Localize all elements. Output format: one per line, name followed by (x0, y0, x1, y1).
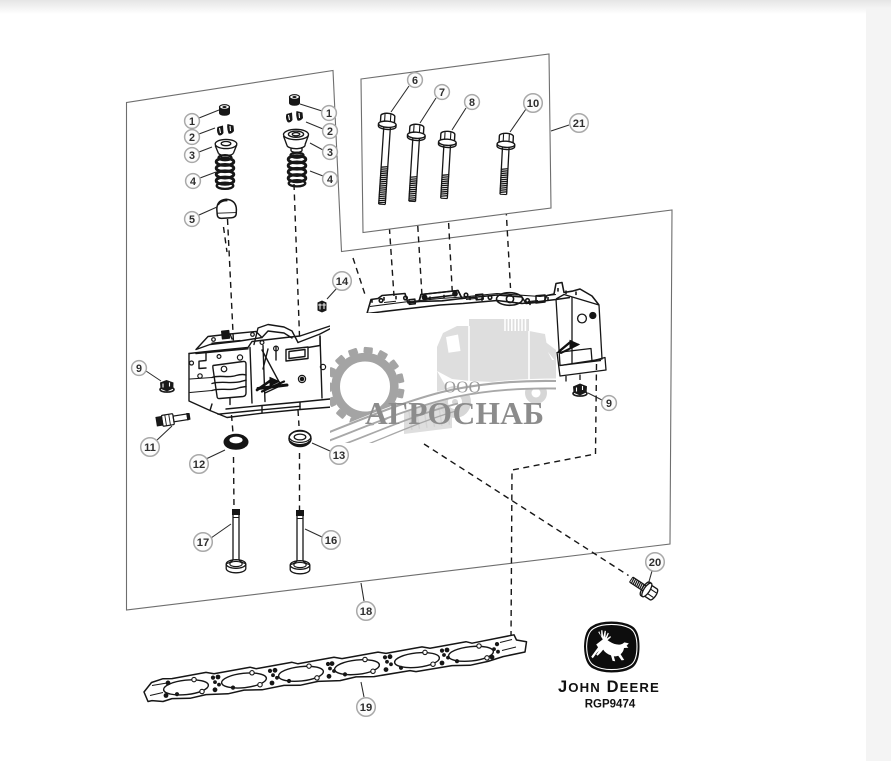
svg-text:9: 9 (606, 398, 612, 410)
svg-text:7: 7 (439, 87, 445, 99)
svg-text:1: 1 (326, 108, 332, 120)
svg-text:1: 1 (189, 116, 195, 128)
svg-text:5: 5 (189, 214, 195, 226)
svg-text:17: 17 (197, 537, 209, 549)
svg-text:13: 13 (333, 450, 345, 462)
svg-text:16: 16 (325, 535, 337, 547)
svg-text:9: 9 (136, 363, 142, 375)
svg-text:4: 4 (190, 176, 196, 188)
svg-text:20: 20 (649, 557, 661, 569)
svg-text:18: 18 (360, 606, 372, 618)
svg-text:10: 10 (527, 98, 539, 110)
svg-text:14: 14 (336, 276, 349, 288)
svg-text:2: 2 (189, 132, 195, 144)
svg-text:3: 3 (327, 147, 333, 159)
svg-text:8: 8 (469, 97, 475, 109)
svg-text:JOHN DEERE: JOHN DEERE (558, 678, 660, 696)
svg-text:21: 21 (573, 118, 585, 130)
svg-text:6: 6 (412, 75, 418, 87)
svg-text:3: 3 (189, 150, 195, 162)
svg-text:4: 4 (327, 174, 333, 186)
svg-text:RGP9474: RGP9474 (585, 699, 636, 711)
svg-text:19: 19 (360, 702, 372, 714)
svg-text:11: 11 (144, 442, 156, 454)
svg-text:12: 12 (193, 459, 205, 471)
svg-text:OOO: OOO (444, 378, 481, 397)
svg-text:АГРОСНАБ: АГРОСНАБ (365, 396, 544, 431)
svg-text:2: 2 (327, 126, 333, 138)
